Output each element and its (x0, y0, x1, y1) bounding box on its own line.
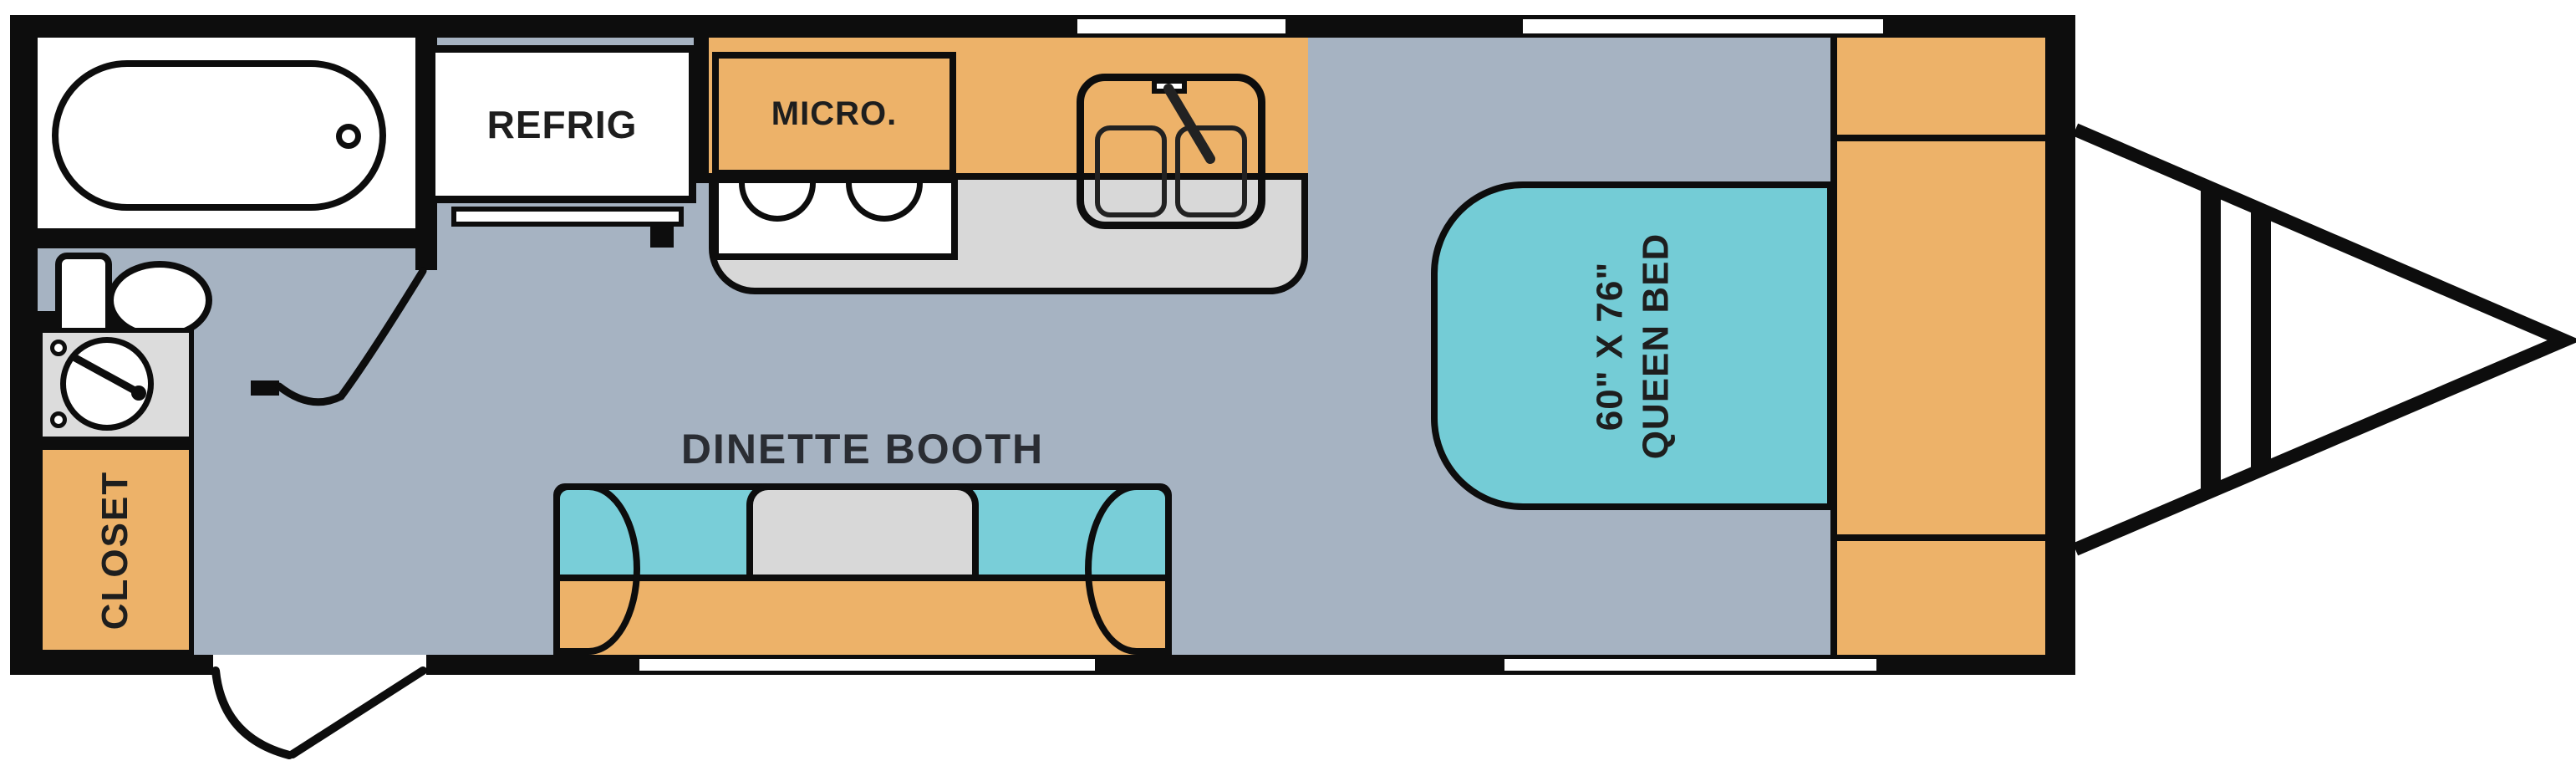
hitch-bar-2 (2251, 209, 2271, 471)
microwave-label: MICRO. (771, 95, 897, 133)
dinette-table (746, 483, 979, 581)
front-storage (1830, 38, 2045, 655)
water-heater-icon (60, 337, 154, 431)
wall-right (2045, 15, 2075, 675)
refrigerator: REFRIG (428, 45, 696, 203)
water-heater-valve-bottom-icon (50, 411, 67, 428)
window-over-bed-top (1523, 15, 1883, 38)
storage-divider-bottom (1837, 534, 2045, 541)
bathtub-drain (336, 124, 361, 149)
hitch-bar-1 (2201, 187, 2221, 492)
bed-size-label: 60" X 76" (1586, 232, 1632, 459)
window-over-sink (1077, 15, 1285, 38)
wall-stub-refrig (650, 222, 674, 248)
refrigerator-label: REFRIG (487, 102, 638, 147)
wall-stub-kitchen (694, 38, 709, 183)
dinette-label: DINETTE BOOTH (654, 425, 1072, 473)
sink-bowl-left (1095, 125, 1167, 217)
sink-bowl-right (1175, 125, 1247, 217)
entry-door-opening (213, 655, 426, 675)
water-heater-valve-top-icon (50, 340, 67, 356)
storage-divider-top (1837, 135, 2045, 141)
faucet-icon (1152, 79, 1187, 94)
wall-left (10, 15, 38, 675)
refrigerator-shelf (451, 207, 684, 227)
closet-label: CLOSET (95, 470, 137, 629)
bathroom-wall (38, 228, 418, 248)
microwave: MICRO. (712, 52, 956, 176)
hitch (2075, 130, 2564, 549)
bed-type-label: QUEEN BED (1632, 232, 1678, 459)
bed-label-wrap: 60" X 76" QUEEN BED (1431, 181, 1834, 510)
window-over-bed-bottom (1504, 655, 1876, 675)
floor-plan: CLOSET REFRIG MICRO. DINETTE BOOTH 60" X… (0, 0, 2576, 766)
entry-door (216, 671, 423, 755)
bed-label: 60" X 76" QUEEN BED (1586, 232, 1678, 459)
dinette-bench (553, 574, 1172, 655)
window-dinette (639, 655, 1095, 675)
closet-label-wrap: CLOSET (38, 445, 194, 655)
